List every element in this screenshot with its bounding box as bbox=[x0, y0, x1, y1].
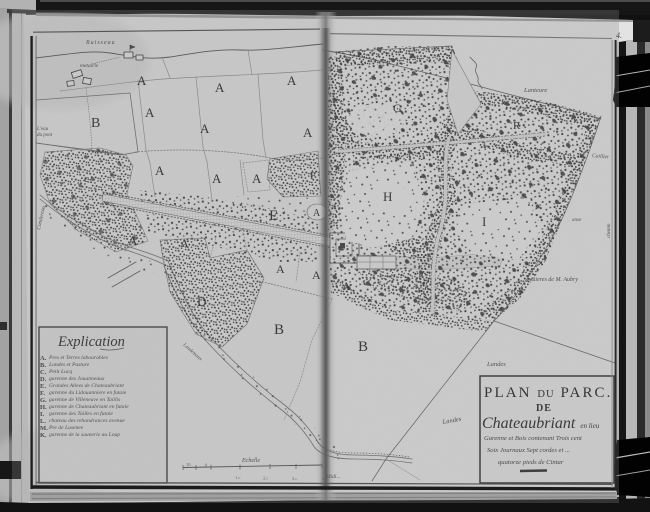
svg-text:4.: 4. bbox=[616, 31, 622, 40]
